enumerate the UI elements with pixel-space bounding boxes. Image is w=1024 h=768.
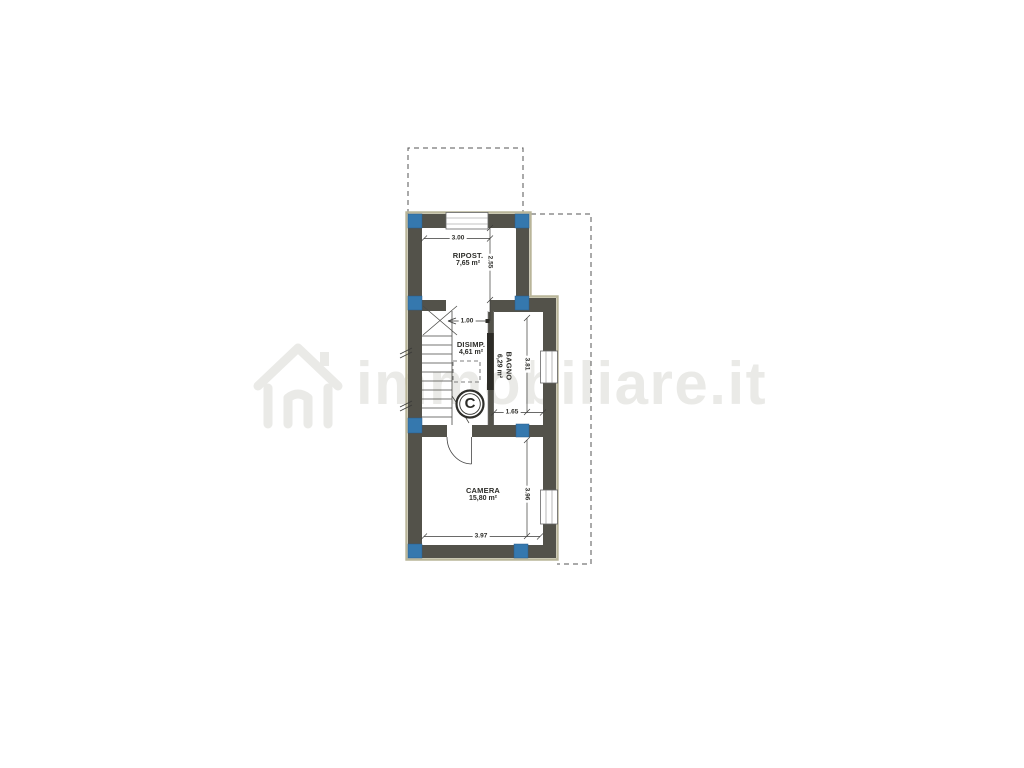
opening-disimp-camera <box>447 424 472 438</box>
disimp-dashed-box <box>453 361 480 382</box>
window-ripost <box>446 213 488 230</box>
window-camera <box>541 490 558 524</box>
stair-circle-letter: C <box>465 395 476 412</box>
dim-ripost-width: 3.00 <box>450 234 467 241</box>
dashed-outline-upper <box>408 148 523 214</box>
window-bagno <box>541 351 558 383</box>
room-label-disimp: DISIMP. 4,61 m² <box>446 340 496 358</box>
floor-plan-drawing <box>0 0 1024 768</box>
room-label-bagno: BAGNO 6,29 m² <box>495 352 514 381</box>
dim-bagno-width: 1.65 <box>504 408 521 415</box>
room-name-camera: CAMERA <box>447 486 519 495</box>
room-name-bagno: BAGNO <box>504 352 514 381</box>
dim-landing-width: 1.00 <box>459 317 476 324</box>
dashed-outline-right <box>531 214 591 564</box>
dim-ripost-depth: 2.55 <box>486 254 493 271</box>
page-background: { "watermark": { "text": "immobiliare.it… <box>0 0 1024 768</box>
room-name-disimp: DISIMP. <box>446 340 496 349</box>
dim-bagno-depth: 3.81 <box>523 356 530 373</box>
room-label-camera: CAMERA 15,80 m² <box>447 486 519 504</box>
room-area-disimp: 4,61 m² <box>446 349 496 358</box>
room-area-camera: 15,80 m² <box>447 495 519 504</box>
dimension-end-dot <box>486 319 490 323</box>
room-area-bagno: 6,29 m² <box>495 352 504 381</box>
dim-camera-depth: 3.96 <box>523 486 530 503</box>
door-swing-camera <box>447 437 472 464</box>
dim-camera-width: 3.97 <box>473 532 490 539</box>
